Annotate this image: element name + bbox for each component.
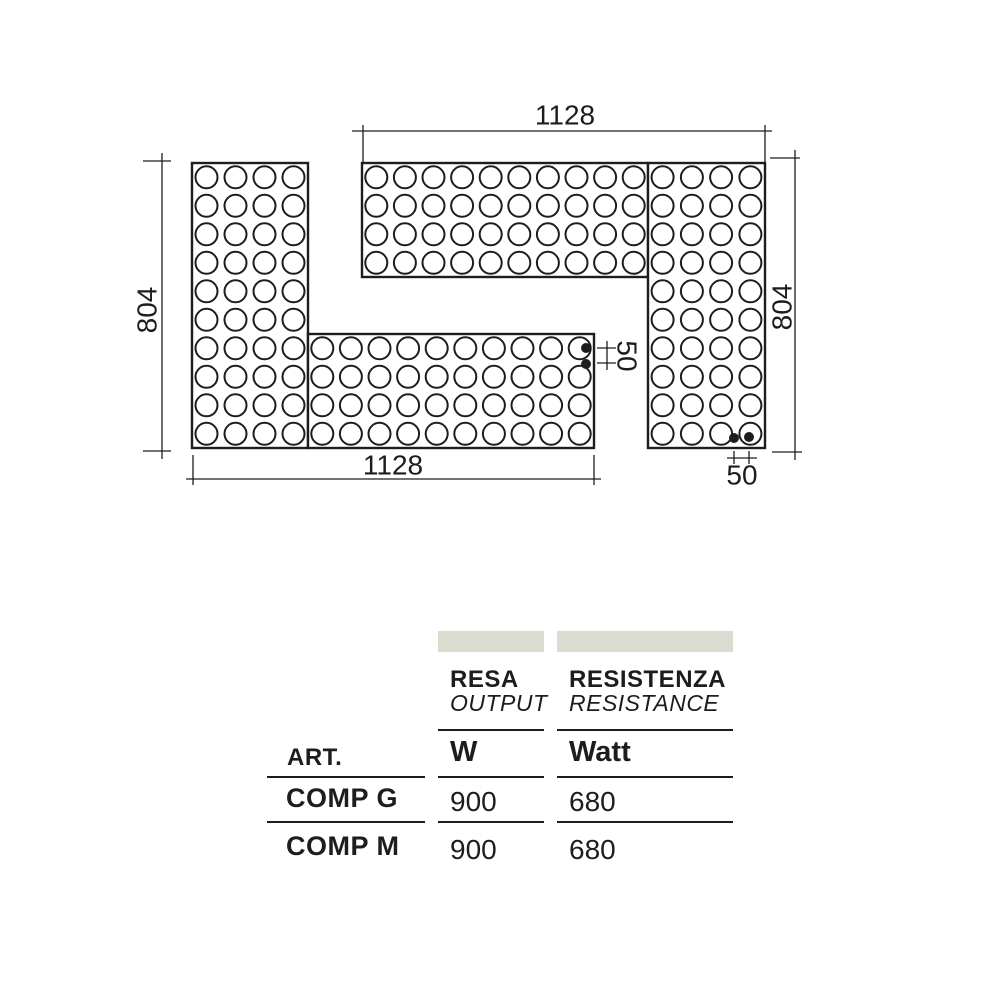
right-horizontal-bar: [362, 163, 648, 277]
divider: [557, 776, 733, 778]
dimension-label: 804: [132, 287, 163, 334]
column-header-watt: Watt: [569, 738, 631, 767]
row-resistance-value: 680: [569, 788, 616, 816]
divider: [438, 729, 544, 731]
divider: [438, 776, 544, 778]
column-header-art: ART.: [287, 746, 342, 770]
row-output-value: 900: [450, 836, 497, 864]
dimension-label: 50: [726, 460, 757, 491]
right-vertical-panel: [648, 163, 765, 448]
divider: [438, 821, 544, 823]
column-header-w: W: [450, 738, 477, 767]
left-vertical-panel: [192, 163, 308, 448]
connection-dot: [729, 433, 739, 443]
row-output-value: 900: [450, 788, 497, 816]
connection-dot: [581, 359, 591, 369]
row-article-name: COMP M: [286, 833, 400, 860]
connection-dot: [744, 432, 754, 442]
dimension-label: 1128: [535, 100, 595, 131]
column-group-title-resistenza: RESISTENZA: [569, 668, 726, 692]
radiator-technical-drawing: 112880480411285050: [0, 0, 1000, 540]
dimension-label: 804: [767, 284, 798, 331]
divider: [557, 729, 733, 731]
dimension-label: 50: [612, 340, 643, 371]
divider: [267, 776, 425, 778]
divider: [557, 821, 733, 823]
accent-bar: [557, 631, 733, 652]
column-group-title-resa: RESA: [450, 668, 519, 692]
column-group-subtitle-resistance: RESISTANCE: [569, 692, 719, 715]
divider: [267, 821, 425, 823]
column-group-subtitle-output: OUTPUT: [450, 692, 548, 715]
row-resistance-value: 680: [569, 836, 616, 864]
accent-bar: [438, 631, 544, 652]
connection-dot: [581, 343, 591, 353]
left-horizontal-bar: [308, 334, 594, 448]
radiator-spec-sheet: 112880480411285050 RESA OUTPUT RESISTENZ…: [0, 0, 1000, 1000]
dimension-label: 1128: [363, 450, 423, 481]
row-article-name: COMP G: [286, 785, 398, 812]
